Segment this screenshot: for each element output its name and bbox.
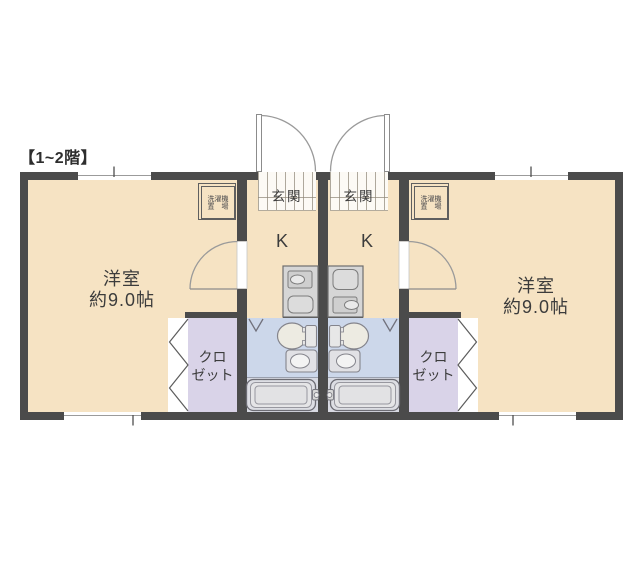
- wall-left-upper: [237, 180, 247, 241]
- closet-top-wall-right: [399, 312, 461, 318]
- window-bottom-right: [499, 412, 576, 420]
- closet-label-left: クロ ゼット: [185, 349, 240, 384]
- closet-door-zone-right: [458, 318, 478, 412]
- closet-top-wall-left: [185, 312, 247, 318]
- laundry-space-right-box: 洗濯機 置 場: [414, 186, 448, 219]
- closet-label-right-line1: クロ: [406, 349, 461, 367]
- window-bottom-left: [64, 412, 141, 420]
- entrance-label-right: 玄関: [330, 185, 388, 205]
- bathroom-left: [247, 318, 318, 377]
- laundry-space-right: 洗濯機 置 場: [411, 183, 449, 220]
- laundry-space-left-box: 洗濯機 置 場: [201, 186, 235, 219]
- window-top-right: [495, 172, 568, 180]
- closet-label-left-line2: ゼット: [185, 367, 240, 385]
- entrance-door-right-icon: [331, 115, 390, 172]
- laundry-space-left: 洗濯機 置 場: [198, 183, 236, 220]
- room-size-right: 約9.0帖: [466, 297, 606, 318]
- closet-label-left-line1: クロ: [185, 349, 240, 367]
- kitchen-label-left: K: [269, 231, 295, 252]
- room-name-left: 洋室: [52, 269, 192, 290]
- bath-top-wall-left: [283, 312, 318, 318]
- room-label-left: 洋室 約9.0帖: [52, 269, 192, 310]
- kitchen-label-right: K: [354, 231, 380, 252]
- bathtub-zone-left: [247, 377, 318, 412]
- entrance-label-left: 玄関: [258, 185, 316, 205]
- party-wall-center: [318, 172, 328, 420]
- room-label-right: 洋室 約9.0帖: [466, 276, 606, 317]
- floor-plan: 【1~2階】: [0, 0, 640, 575]
- room-name-right: 洋室: [466, 276, 606, 297]
- closet-label-right-line2: ゼット: [406, 367, 461, 385]
- closet-label-right: クロ ゼット: [406, 349, 461, 384]
- laundry-space-right-text: 洗濯機 置 場: [421, 195, 442, 210]
- wall-right-upper: [399, 180, 409, 241]
- bath-top-wall-right: [328, 312, 363, 318]
- floor-title: 【1~2階】: [19, 144, 97, 168]
- bathtub-zone-right: [328, 377, 399, 412]
- laundry-space-left-text: 洗濯機 置 場: [208, 195, 229, 210]
- bathroom-right: [328, 318, 399, 377]
- entrance-door-left-icon: [257, 115, 316, 172]
- window-top-left: [78, 172, 151, 180]
- room-size-left: 約9.0帖: [52, 290, 192, 311]
